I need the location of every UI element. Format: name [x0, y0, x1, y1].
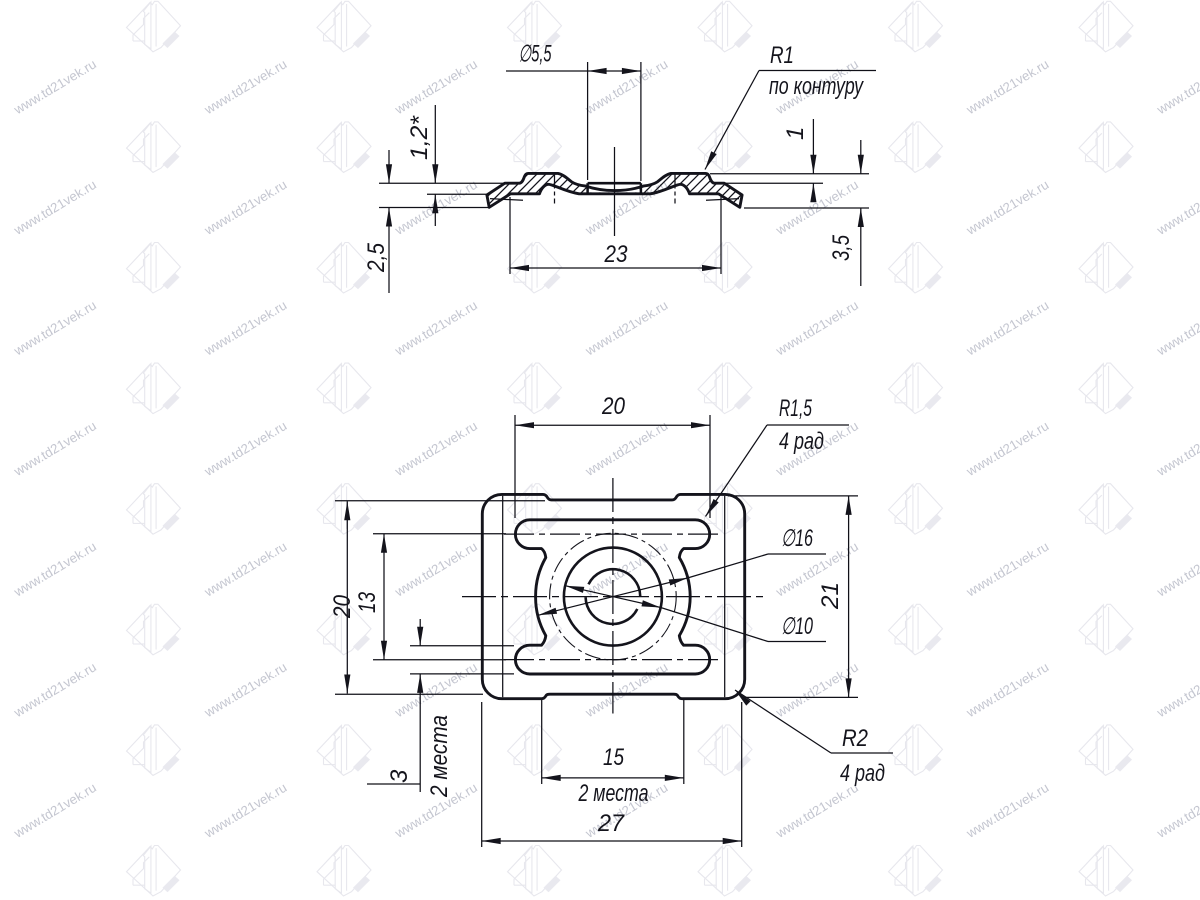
svg-text:∅16: ∅16 — [781, 525, 813, 552]
svg-text:20: 20 — [329, 594, 356, 618]
svg-text:4 рад: 4 рад — [840, 760, 885, 787]
svg-text:1: 1 — [782, 127, 809, 140]
svg-text:27: 27 — [597, 810, 626, 837]
svg-text:∅10: ∅10 — [781, 613, 813, 640]
svg-text:R2: R2 — [842, 725, 868, 752]
svg-text:21: 21 — [817, 582, 844, 610]
svg-text:3: 3 — [386, 769, 413, 783]
svg-text:R1,5: R1,5 — [779, 395, 812, 422]
svg-text:23: 23 — [604, 241, 628, 268]
svg-text:4 рад: 4 рад — [779, 428, 824, 455]
svg-text:по контуру: по контуру — [769, 73, 864, 100]
svg-text:R1: R1 — [770, 42, 794, 69]
svg-text:2,5: 2,5 — [363, 242, 390, 272]
svg-text:2 места: 2 места — [426, 715, 453, 798]
svg-text:13: 13 — [354, 591, 381, 613]
svg-text:15: 15 — [603, 744, 625, 771]
svg-text:1,2*: 1,2* — [406, 115, 433, 160]
svg-text:3,5: 3,5 — [828, 235, 855, 261]
svg-text:∅5,5: ∅5,5 — [519, 41, 552, 68]
svg-text:2 места: 2 места — [578, 780, 649, 807]
svg-text:20: 20 — [601, 393, 625, 420]
